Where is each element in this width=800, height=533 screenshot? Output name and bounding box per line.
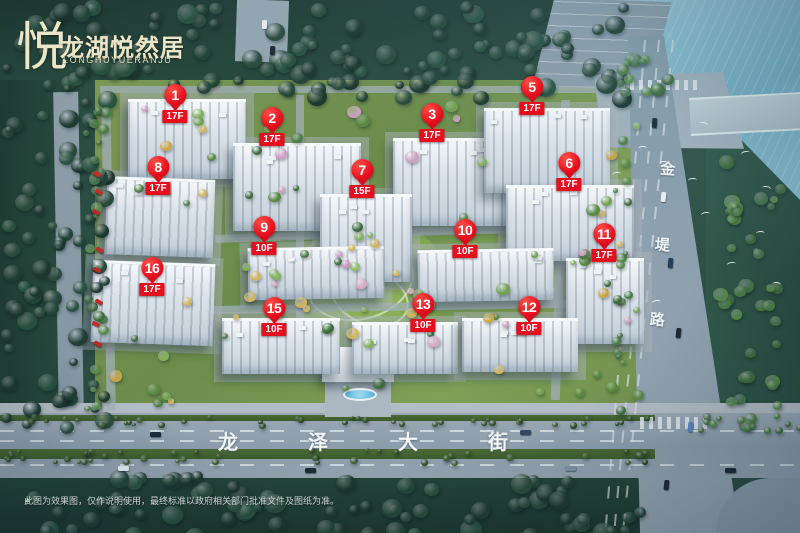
roof-unit [263, 262, 270, 266]
residential-building [484, 108, 610, 193]
tree [427, 51, 446, 68]
roof-unit [541, 192, 548, 196]
marker-pin: 10 [454, 219, 476, 241]
tree [361, 307, 367, 313]
tree [345, 56, 360, 70]
tree [716, 416, 722, 421]
tree [624, 449, 630, 454]
tree [616, 406, 626, 415]
marker-floor-tag: 15F [349, 185, 374, 198]
tree [373, 378, 385, 389]
marker-floor-tag: 17F [556, 178, 581, 191]
marker-number: 15 [267, 300, 282, 316]
tree [307, 88, 327, 106]
tree [561, 43, 574, 54]
marker-number: 6 [565, 155, 572, 171]
roof-unit [554, 114, 561, 118]
marker-pin: 9 [253, 216, 275, 238]
tree [346, 328, 359, 339]
tree [66, 524, 78, 533]
roof-unit [570, 191, 577, 195]
marker-pin: 15 [263, 297, 285, 319]
tree [605, 16, 625, 34]
marker-number: 2 [268, 110, 275, 126]
tree [775, 184, 786, 194]
tree [530, 8, 546, 22]
car [725, 468, 736, 473]
tree [162, 474, 176, 487]
tree [772, 340, 781, 348]
tree [536, 388, 544, 395]
tree [20, 456, 26, 461]
tree [221, 512, 236, 526]
tree [147, 384, 160, 396]
tree [227, 481, 240, 493]
tree [620, 159, 629, 167]
tree [473, 23, 486, 35]
tree [360, 501, 372, 512]
building-marker-15: 1510F [261, 297, 286, 336]
tree [624, 291, 633, 299]
roof-unit [609, 275, 616, 279]
tree [604, 280, 611, 287]
tree [511, 474, 533, 494]
side-road-name-char: 金 [660, 158, 676, 180]
roof-unit [334, 155, 341, 159]
roof-unit [594, 270, 601, 274]
tree [322, 323, 333, 333]
marker-pin: 6 [558, 152, 580, 174]
marker-number: 5 [528, 79, 535, 95]
tree [37, 111, 48, 121]
tree [619, 420, 624, 425]
tree [349, 505, 359, 514]
tree [397, 478, 415, 494]
tree [3, 265, 22, 282]
disclaimer-text: 此图为效果图，仅作说明使用，最终标准以政府相关部门批准文件及图纸为准。 [24, 494, 339, 507]
roof-unit [339, 210, 346, 214]
tree [311, 3, 326, 17]
roof-unit [532, 200, 539, 204]
tree [207, 415, 212, 420]
tree [4, 243, 20, 257]
tree [586, 204, 600, 216]
marker-floor-tag: 10F [452, 245, 477, 258]
tree [593, 370, 602, 378]
tree [617, 64, 628, 74]
roof-unit [236, 333, 243, 337]
tree [698, 427, 704, 432]
tree [331, 77, 345, 90]
marker-floor-tag: 17F [419, 129, 444, 142]
tree [451, 86, 462, 96]
tree [386, 522, 405, 533]
tree [355, 278, 367, 289]
roof-unit [176, 279, 183, 283]
tree [31, 414, 38, 420]
tree [774, 413, 780, 418]
building-marker-7: 715F [349, 159, 374, 198]
tree [620, 360, 625, 365]
tree [473, 91, 489, 105]
building-marker-10: 1010F [452, 219, 477, 258]
roof-unit [477, 148, 484, 152]
tree [363, 339, 374, 349]
tree [293, 185, 299, 191]
tree [68, 328, 88, 346]
tree [496, 283, 510, 295]
tree [268, 517, 286, 533]
tree [162, 506, 183, 525]
tree [414, 6, 430, 20]
marker-number: 11 [597, 226, 611, 242]
building-marker-9: 910F [251, 216, 276, 255]
tree [94, 224, 109, 238]
tree [114, 416, 118, 420]
tree [110, 370, 123, 382]
building-marker-5: 517F [519, 76, 544, 115]
street-name-char: 龙 [218, 426, 238, 455]
tree [625, 460, 631, 465]
marker-floor-tag: 17F [259, 133, 284, 146]
tree [2, 220, 15, 232]
tree [2, 64, 11, 72]
tree [275, 148, 287, 159]
roof-unit [219, 113, 226, 117]
tree [516, 32, 527, 42]
tree [421, 459, 428, 465]
tree [613, 295, 622, 303]
car [270, 46, 275, 55]
marker-floor-tag: 10F [410, 319, 435, 332]
tree [633, 122, 641, 129]
tree [518, 44, 535, 59]
street-name-char: 大 [398, 426, 418, 455]
tree [477, 158, 486, 166]
tree [598, 288, 608, 297]
main-street-name: 龙泽大街 [218, 426, 508, 455]
tree [242, 50, 261, 68]
tree [131, 335, 138, 341]
tree [250, 271, 261, 281]
marker-number: 16 [145, 260, 160, 276]
tree [764, 427, 771, 433]
marker-pin: 13 [412, 293, 434, 315]
tree [624, 60, 629, 65]
tree [713, 288, 728, 301]
tree [181, 419, 187, 424]
tree [624, 198, 632, 205]
tree [135, 509, 147, 519]
tree [767, 380, 778, 390]
roof-unit [121, 271, 128, 275]
tree [352, 222, 363, 232]
tree [627, 416, 633, 421]
marker-pin: 2 [261, 107, 283, 129]
car [652, 118, 658, 128]
tree [6, 457, 11, 462]
tree [335, 251, 342, 258]
tree [168, 398, 174, 403]
tree [301, 62, 317, 76]
building-marker-11: 1117F [591, 223, 616, 262]
marker-number: 13 [416, 296, 431, 312]
tree [84, 295, 93, 303]
tree [73, 181, 83, 190]
residential-building [352, 322, 458, 374]
building-marker-12: 1210F [516, 296, 541, 335]
roof-unit [500, 333, 507, 337]
tree [615, 422, 619, 426]
site-plan-render: e 117F217F317F517F617F715F817F910F1010F1… [0, 0, 800, 533]
tree [453, 115, 460, 122]
tree [258, 420, 262, 424]
tree [44, 419, 49, 423]
tree [212, 459, 219, 465]
tree [639, 58, 646, 65]
tree [315, 460, 320, 465]
marker-pin: 12 [518, 296, 540, 318]
marker-floor-tag: 10F [261, 323, 286, 336]
tree [280, 53, 296, 67]
tree [158, 422, 164, 428]
car [118, 466, 129, 471]
tree [29, 286, 41, 297]
tree [624, 74, 634, 83]
tree [474, 41, 486, 51]
side-road-name-char: 路 [649, 308, 665, 330]
tree [596, 75, 618, 94]
tree [367, 232, 374, 238]
tree [278, 186, 285, 192]
tree [84, 406, 90, 412]
tree [123, 459, 130, 465]
tree [734, 286, 745, 296]
tree [93, 311, 105, 322]
bird-icon [688, 178, 697, 183]
roof-unit [151, 111, 158, 115]
tree [73, 235, 86, 246]
tree [62, 386, 77, 399]
tree [98, 422, 105, 428]
roof-unit [362, 210, 369, 214]
marker-pin: 3 [421, 103, 443, 125]
tree [502, 321, 508, 327]
roof-unit [266, 160, 273, 164]
tree [622, 512, 635, 523]
tree [62, 416, 68, 421]
tree [194, 450, 198, 454]
tree [60, 421, 74, 434]
tree [422, 71, 437, 85]
tree [245, 191, 253, 198]
tree [464, 514, 476, 525]
tree [221, 333, 228, 339]
street-name-char: 街 [488, 426, 508, 455]
tree [1, 413, 12, 423]
building-marker-2: 217F [259, 107, 284, 146]
tree [242, 263, 250, 270]
marker-number: 9 [260, 219, 267, 235]
marker-pin: 7 [351, 159, 373, 181]
bird-icon [772, 282, 781, 287]
tree [770, 316, 781, 326]
tree [356, 91, 368, 102]
tree [180, 456, 187, 462]
tree [400, 512, 411, 522]
marker-number: 8 [154, 159, 161, 175]
tree [362, 417, 369, 423]
tree [642, 459, 648, 465]
marker-pin: 16 [141, 257, 163, 279]
tree [153, 399, 163, 408]
tree [85, 244, 95, 253]
roof-unit [350, 205, 357, 209]
tree [413, 504, 428, 517]
building-marker-16: 1617F [139, 257, 164, 296]
tree [1, 376, 17, 391]
tree [763, 300, 775, 311]
tree [348, 244, 355, 251]
roof-unit [408, 339, 415, 343]
tree [531, 251, 538, 257]
tree [427, 336, 439, 347]
tree [395, 81, 404, 89]
marker-floor-tag: 17F [162, 110, 187, 123]
roof-unit [470, 151, 477, 155]
tree [405, 151, 419, 163]
tree [90, 387, 96, 393]
roof-unit [580, 115, 587, 119]
tree [606, 526, 617, 533]
tree [53, 240, 65, 251]
tree [785, 421, 791, 427]
marker-floor-tag: 10F [516, 322, 541, 335]
tree [745, 348, 756, 358]
marker-floor-tag: 17F [145, 182, 170, 195]
tree [376, 45, 397, 64]
tree [620, 526, 630, 533]
car [565, 466, 576, 471]
tree [636, 452, 644, 459]
project-logo: 悦 龙湖悦然居 LONGHUYUERANJU [12, 18, 242, 108]
tree [158, 351, 168, 360]
tree [182, 297, 192, 306]
tree [336, 475, 356, 493]
tree [233, 314, 239, 320]
tree [48, 222, 57, 230]
car [520, 430, 531, 435]
tree [59, 110, 79, 128]
tree [260, 63, 274, 76]
tree [22, 183, 36, 196]
car [150, 432, 161, 437]
tree [737, 416, 745, 423]
tree [1, 329, 14, 341]
tree [291, 133, 303, 143]
bridge [689, 92, 800, 136]
tree [623, 251, 629, 256]
tree [22, 232, 35, 244]
tree [616, 241, 623, 247]
building-marker-8: 817F [145, 156, 170, 195]
building-marker-6: 617F [556, 152, 581, 191]
tree [633, 390, 643, 399]
car [687, 422, 693, 432]
tree [191, 471, 203, 482]
tree [489, 420, 495, 426]
tree [64, 456, 71, 462]
side-road-name-char: 堤 [654, 233, 670, 255]
marker-floor-tag: 17F [139, 283, 164, 296]
tree [796, 424, 800, 431]
marker-number: 3 [428, 106, 435, 122]
project-title-pinyin: LONGHUYUERANJU [63, 55, 172, 65]
tree [102, 453, 108, 458]
roof-unit [287, 257, 294, 261]
tree [40, 525, 54, 533]
tree [620, 87, 631, 97]
tree [633, 307, 640, 313]
tree [342, 420, 348, 425]
tree [549, 491, 570, 510]
tree [317, 520, 336, 533]
marker-number: 7 [358, 162, 365, 178]
roof-unit [116, 183, 123, 187]
tree [483, 313, 494, 323]
marker-number: 12 [522, 299, 537, 315]
tree [90, 156, 99, 164]
tree [424, 483, 439, 497]
roof-unit [490, 120, 497, 124]
tree [448, 48, 461, 59]
tree [445, 101, 457, 112]
tree [95, 107, 102, 114]
tree [731, 309, 742, 319]
tree [561, 476, 574, 488]
tree [32, 260, 51, 277]
tree [4, 344, 13, 352]
car [305, 468, 316, 473]
tree [662, 74, 674, 84]
tree [582, 63, 598, 77]
tree [618, 3, 629, 13]
tree [350, 457, 358, 464]
car [663, 480, 669, 490]
tree [606, 150, 617, 160]
marker-pin: 8 [147, 156, 169, 178]
tree [303, 305, 310, 312]
marker-floor-tag: 17F [519, 102, 544, 115]
tree [88, 458, 93, 463]
tree [408, 528, 421, 533]
tree [303, 25, 316, 36]
roof-unit [535, 259, 542, 263]
tree [345, 19, 363, 35]
tree [618, 136, 628, 145]
marker-pin: 5 [521, 76, 543, 98]
tree [578, 249, 586, 256]
tree [268, 192, 280, 203]
marker-floor-tag: 17F [591, 249, 616, 262]
tree [740, 371, 754, 384]
car [675, 328, 681, 338]
car [262, 20, 267, 29]
tree [767, 203, 775, 210]
tree [96, 140, 102, 145]
marker-pin: 11 [593, 223, 615, 245]
tree [90, 365, 99, 373]
